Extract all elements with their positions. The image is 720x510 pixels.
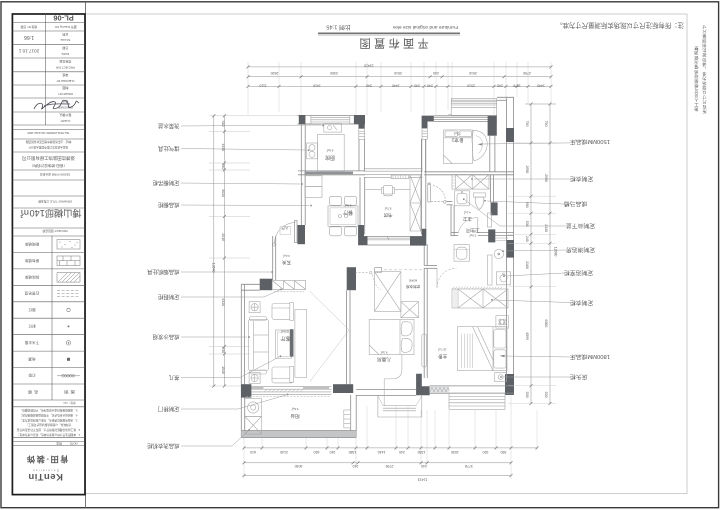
svg-text:原有墙体: 原有墙体 bbox=[24, 258, 39, 263]
svg-text:DRAWING TITLE 工程名称: DRAWING TITLE 工程名称 bbox=[38, 200, 72, 204]
svg-text:610: 610 bbox=[250, 450, 256, 454]
svg-text:CLIENT: CLIENT bbox=[60, 119, 70, 123]
svg-text:7.2㎡: 7.2㎡ bbox=[454, 132, 461, 136]
svg-text:6360: 6360 bbox=[544, 320, 548, 328]
svg-text:厨房: 厨房 bbox=[325, 154, 335, 161]
svg-text:240: 240 bbox=[221, 347, 225, 353]
svg-text:930: 930 bbox=[501, 450, 507, 454]
svg-text:1440: 1440 bbox=[221, 143, 225, 151]
svg-text:比例: 比例 bbox=[62, 33, 68, 38]
svg-text:床头柜: 床头柜 bbox=[570, 373, 588, 381]
svg-text:240: 240 bbox=[221, 164, 225, 170]
svg-text:240: 240 bbox=[414, 83, 420, 87]
svg-text:3020: 3020 bbox=[221, 189, 225, 197]
svg-text:（肯田·装饰设计机构）: （肯田·装饰设计机构） bbox=[30, 164, 67, 169]
svg-text:520: 520 bbox=[483, 450, 489, 454]
svg-text:2300: 2300 bbox=[330, 71, 338, 75]
svg-text:地漏: 地漏 bbox=[28, 357, 36, 362]
svg-text:4599: 4599 bbox=[525, 332, 529, 340]
svg-text:卫生间: 卫生间 bbox=[466, 227, 479, 234]
svg-text:定制鞋柜: 定制鞋柜 bbox=[157, 293, 179, 301]
svg-text:Decoration: Decoration bbox=[31, 469, 58, 472]
svg-text:1500MM成品床: 1500MM成品床 bbox=[570, 138, 610, 146]
svg-text:2010: 2010 bbox=[221, 233, 225, 241]
svg-text:计师联系，以便协商解决后方可施工；: 计师联系，以便协商解决后方可施工； bbox=[26, 423, 72, 427]
svg-text:3.8㎡: 3.8㎡ bbox=[469, 234, 476, 238]
svg-text:4320: 4320 bbox=[221, 298, 225, 306]
svg-text:2510: 2510 bbox=[469, 71, 477, 75]
svg-text:项目总监: 项目总监 bbox=[59, 60, 71, 65]
svg-text:8.9㎡: 8.9㎡ bbox=[344, 204, 351, 208]
svg-text:240: 240 bbox=[497, 83, 503, 87]
svg-text:图号 Drawing NO.: 图号 Drawing NO. bbox=[54, 25, 77, 29]
svg-text:设计: 设计 bbox=[62, 100, 68, 105]
svg-text:2510: 2510 bbox=[467, 83, 475, 87]
svg-text:肯田·装饰: 肯田·装饰 bbox=[25, 455, 68, 465]
svg-text:750: 750 bbox=[544, 121, 548, 127]
svg-text:240: 240 bbox=[353, 464, 359, 468]
svg-text:定制衣柜: 定制衣柜 bbox=[570, 299, 593, 307]
svg-text:2520: 2520 bbox=[271, 71, 279, 75]
svg-text:3.2㎡: 3.2㎡ bbox=[283, 254, 290, 258]
svg-text:定制台下盆: 定制台下盆 bbox=[566, 222, 595, 230]
svg-text:5.6㎡: 5.6㎡ bbox=[291, 407, 298, 411]
svg-text:4、未经设计单位许可，不得擅自修改图纸内容；: 4、未经设计单位许可，不得擅自修改图纸内容； bbox=[20, 413, 78, 417]
svg-text:地址：山东省淄博市张店区共青团西路: 地址：山东省淄博市张店区共青团西路 bbox=[25, 140, 71, 144]
svg-text:TEL:0533-2286888 139-6432-168: TEL:0533-2286888 139-6432-1688 bbox=[27, 131, 69, 135]
svg-text:CHECKED BY: CHECKED BY bbox=[56, 79, 74, 83]
svg-text:定制浴室柜: 定制浴室柜 bbox=[564, 269, 593, 277]
svg-text:1540: 1540 bbox=[221, 366, 225, 374]
svg-text:主卧: 主卧 bbox=[438, 353, 448, 360]
svg-text:入户: 入户 bbox=[281, 226, 289, 231]
svg-text:制图: 制图 bbox=[62, 86, 68, 91]
svg-text:2140: 2140 bbox=[280, 450, 288, 454]
svg-text:石膏吊顶: 石膏吊顶 bbox=[24, 291, 39, 296]
svg-text:W2400: W2400 bbox=[408, 279, 417, 283]
svg-text:书房: 书房 bbox=[383, 212, 393, 219]
svg-text:1380: 1380 bbox=[349, 450, 357, 454]
svg-text:定制橱吊柜: 定制橱吊柜 bbox=[152, 179, 180, 187]
svg-text:定制移门: 定制移门 bbox=[158, 405, 180, 413]
svg-text:定制衣柜: 定制衣柜 bbox=[405, 285, 420, 290]
svg-text:博山樾邸140㎡: 博山樾邸140㎡ bbox=[20, 208, 81, 219]
svg-text:平面布置图: 平面布置图 bbox=[356, 37, 429, 50]
svg-text:4.1㎡: 4.1㎡ bbox=[464, 211, 471, 215]
svg-text:审核: 审核 bbox=[62, 73, 68, 78]
svg-text:1440: 1440 bbox=[378, 450, 386, 454]
svg-text:1、本图所注尺寸均以毫米为单位，标高以米为单位；: 1、本图所注尺寸均以毫米为单位，标高以米为单位； bbox=[17, 433, 80, 437]
svg-text:洗菜水盆: 洗菜水盆 bbox=[157, 122, 179, 130]
svg-text:PROJECT DIR: PROJECT DIR bbox=[56, 66, 75, 70]
svg-text:修改 BY 日期: 修改 BY 日期 bbox=[20, 25, 37, 29]
svg-text:SCALE: SCALE bbox=[60, 38, 70, 42]
svg-text:成品沙发组: 成品沙发组 bbox=[152, 333, 180, 341]
svg-text:13415: 13415 bbox=[364, 63, 374, 67]
svg-text:成品橱柜: 成品橱柜 bbox=[157, 201, 179, 209]
svg-text:240: 240 bbox=[427, 83, 433, 87]
svg-text:540: 540 bbox=[366, 83, 372, 87]
svg-text:1930: 1930 bbox=[451, 450, 459, 454]
svg-text:成品烟机灶具: 成品烟机灶具 bbox=[147, 268, 180, 276]
svg-text:DESIGN FIRM 设计单位: DESIGN FIRM 设计单位 bbox=[40, 173, 71, 177]
svg-text:客厅: 客厅 bbox=[280, 335, 290, 342]
svg-text:筒灯: 筒灯 bbox=[28, 308, 36, 313]
svg-text:2140: 2140 bbox=[544, 224, 548, 232]
svg-text:儿童房: 儿童房 bbox=[377, 356, 392, 363]
svg-text:750: 750 bbox=[525, 121, 529, 127]
svg-text:主卫: 主卫 bbox=[463, 217, 472, 223]
svg-text:240: 240 bbox=[421, 464, 427, 468]
svg-text:Furniture and original size el: Furniture and original size elev bbox=[392, 24, 458, 30]
svg-text:定制淋浴房: 定制淋浴房 bbox=[566, 246, 595, 254]
svg-text:6.6㎡: 6.6㎡ bbox=[326, 149, 333, 153]
svg-text:2950: 2950 bbox=[544, 174, 548, 182]
svg-text:510: 510 bbox=[221, 121, 225, 127]
svg-text:1110: 1110 bbox=[259, 83, 266, 87]
svg-text:1800MM成品床: 1800MM成品床 bbox=[570, 353, 610, 361]
svg-text:玄关: 玄关 bbox=[282, 259, 292, 266]
svg-text:2、施工前请仔细核对现场尺寸，如有不符请及时与设: 2、施工前请仔细核对现场尺寸，如有不符请及时与设 bbox=[17, 428, 81, 432]
svg-text:240: 240 bbox=[433, 71, 439, 75]
svg-text:1330: 1330 bbox=[418, 450, 426, 454]
svg-text:3、水电布置图仅供参考，具体以现场交底为准；: 3、水电布置图仅供参考，具体以现场交底为准； bbox=[20, 418, 78, 422]
svg-text:成品马桶: 成品马桶 bbox=[564, 200, 587, 208]
svg-text:餐厅: 餐厅 bbox=[343, 209, 353, 216]
svg-text:240: 240 bbox=[399, 450, 405, 454]
svg-text:530: 530 bbox=[525, 392, 529, 398]
svg-text:530: 530 bbox=[544, 392, 548, 398]
svg-text:阳台: 阳台 bbox=[290, 413, 300, 420]
svg-text:5、本图纸版权归设计单位所有，不得转借翻印。: 5、本图纸版权归设计单位所有，不得转借翻印。 bbox=[20, 409, 78, 413]
svg-text:金晶大道交叉口鲁中晨报大厦15F: 金晶大道交叉口鲁中晨报大厦15F bbox=[28, 145, 68, 149]
svg-text:2750: 2750 bbox=[523, 71, 531, 75]
svg-text:9.3㎡: 9.3㎡ bbox=[380, 351, 387, 355]
svg-text:日期: 日期 bbox=[62, 46, 68, 51]
svg-text:煤气灶具: 煤气灶具 bbox=[157, 145, 179, 153]
svg-text:3778: 3778 bbox=[465, 464, 473, 468]
svg-text:240: 240 bbox=[330, 450, 336, 454]
svg-text:1:66: 1:66 bbox=[24, 34, 34, 40]
svg-text:射灯: 射灯 bbox=[28, 324, 36, 329]
svg-text:2017.10.1: 2017.10.1 bbox=[18, 49, 39, 54]
svg-text:DATE: DATE bbox=[62, 52, 70, 56]
svg-text:13540: 13540 bbox=[212, 263, 216, 273]
svg-text:图例: 图例 bbox=[62, 389, 74, 396]
svg-text:NOTE: NOTE bbox=[70, 442, 78, 446]
svg-text:成品洗衣机柜: 成品洗衣机柜 bbox=[147, 442, 180, 450]
svg-text:单位：mm: 单位：mm bbox=[63, 401, 75, 405]
svg-text:淄博肯田装饰工程有限公司: 淄博肯田装饰工程有限公司 bbox=[22, 155, 75, 162]
svg-text:客户确认: 客户确认 bbox=[59, 113, 71, 118]
svg-text:15.7㎡: 15.7㎡ bbox=[438, 348, 446, 352]
svg-text:2799: 2799 bbox=[386, 464, 394, 468]
svg-text:2160: 2160 bbox=[525, 261, 529, 269]
svg-text:灯带: 灯带 bbox=[28, 373, 36, 378]
svg-text:DRAWN BY: DRAWN BY bbox=[58, 92, 73, 96]
svg-text:定制衣柜: 定制衣柜 bbox=[570, 175, 593, 183]
svg-text:新砌墙体: 新砌墙体 bbox=[24, 242, 39, 247]
svg-text:2510: 2510 bbox=[394, 71, 402, 75]
svg-text:1410: 1410 bbox=[313, 83, 321, 87]
svg-text:PROJECT 项目名称: PROJECT 项目名称 bbox=[42, 229, 67, 233]
svg-text:下水主管: 下水主管 bbox=[24, 340, 39, 345]
svg-text:22.8㎡: 22.8㎡ bbox=[281, 330, 289, 334]
svg-text:530: 530 bbox=[525, 221, 529, 227]
svg-text:2950: 2950 bbox=[525, 166, 529, 174]
svg-text:4030: 4030 bbox=[295, 464, 303, 468]
svg-text:PL-06: PL-06 bbox=[53, 14, 73, 23]
svg-text:KenTin: KenTin bbox=[28, 471, 63, 482]
svg-text:8.7㎡: 8.7㎡ bbox=[384, 207, 391, 211]
svg-text:1440: 1440 bbox=[537, 83, 545, 87]
svg-text:拆除墙体: 拆除墙体 bbox=[24, 275, 39, 280]
svg-text:620: 620 bbox=[314, 450, 320, 454]
svg-text:240: 240 bbox=[525, 236, 529, 242]
svg-text:卧室2: 卧室2 bbox=[451, 137, 463, 144]
svg-text:DESIGNER: DESIGNER bbox=[58, 106, 73, 110]
svg-text:900: 900 bbox=[525, 202, 529, 208]
svg-text:名称: 名称 bbox=[26, 389, 38, 396]
svg-text:比例 1:45: 比例 1:45 bbox=[326, 24, 351, 32]
svg-text:11413: 11413 bbox=[418, 478, 428, 482]
svg-text:附注: 附注 bbox=[56, 442, 62, 446]
svg-text:茶几: 茶几 bbox=[168, 374, 179, 382]
svg-text:12980: 12980 bbox=[554, 247, 558, 257]
svg-text:1440: 1440 bbox=[392, 83, 400, 87]
svg-text:1370: 1370 bbox=[513, 83, 521, 87]
svg-text:注：所有标注尺寸以现场实际测量尺寸为准。: 注：所有标注尺寸以现场实际测量尺寸为准。 bbox=[556, 21, 684, 30]
